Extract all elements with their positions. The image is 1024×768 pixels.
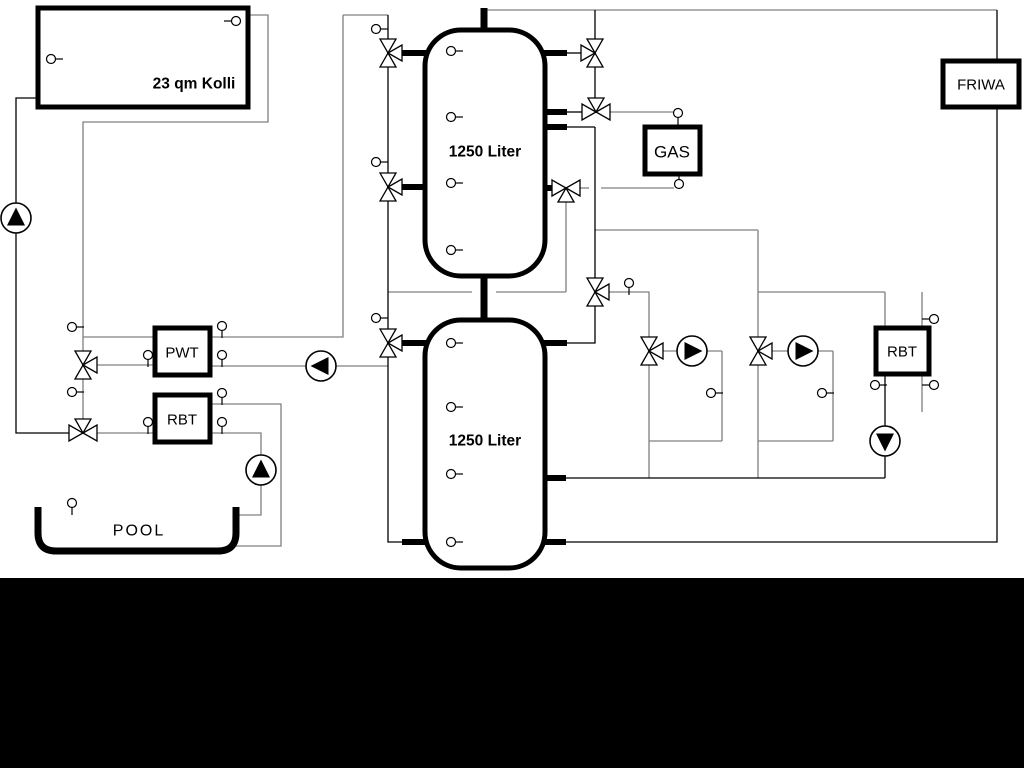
rbt-left-label: RBT	[167, 412, 197, 429]
circuit1-pump-icon	[677, 336, 707, 366]
tank-top-label: 1250 Liter	[449, 144, 521, 161]
gas-label: GAS	[654, 143, 690, 162]
circuit2-pump-icon	[788, 336, 818, 366]
schematic-page: 23 qm Kolli 1250 Liter 1250 Liter GAS FR…	[0, 0, 1024, 768]
solar-pump-icon	[1, 203, 31, 233]
friwa-label: FRIWA	[957, 77, 1005, 94]
tank-bottom-label: 1250 Liter	[449, 433, 521, 450]
rbt-pump-icon	[870, 426, 900, 456]
tank-charge-pump-icon	[306, 351, 336, 381]
rbt-right-label: RBT	[887, 344, 917, 361]
collector-label: 23 qm Kolli	[153, 76, 236, 93]
pool-pump-icon	[246, 455, 276, 485]
bottom-black-bar	[0, 578, 1024, 768]
pool-label: POOL	[113, 523, 165, 540]
hydraulic-schematic: 23 qm Kolli 1250 Liter 1250 Liter GAS FR…	[0, 0, 1024, 768]
pwt-label: PWT	[165, 345, 198, 362]
